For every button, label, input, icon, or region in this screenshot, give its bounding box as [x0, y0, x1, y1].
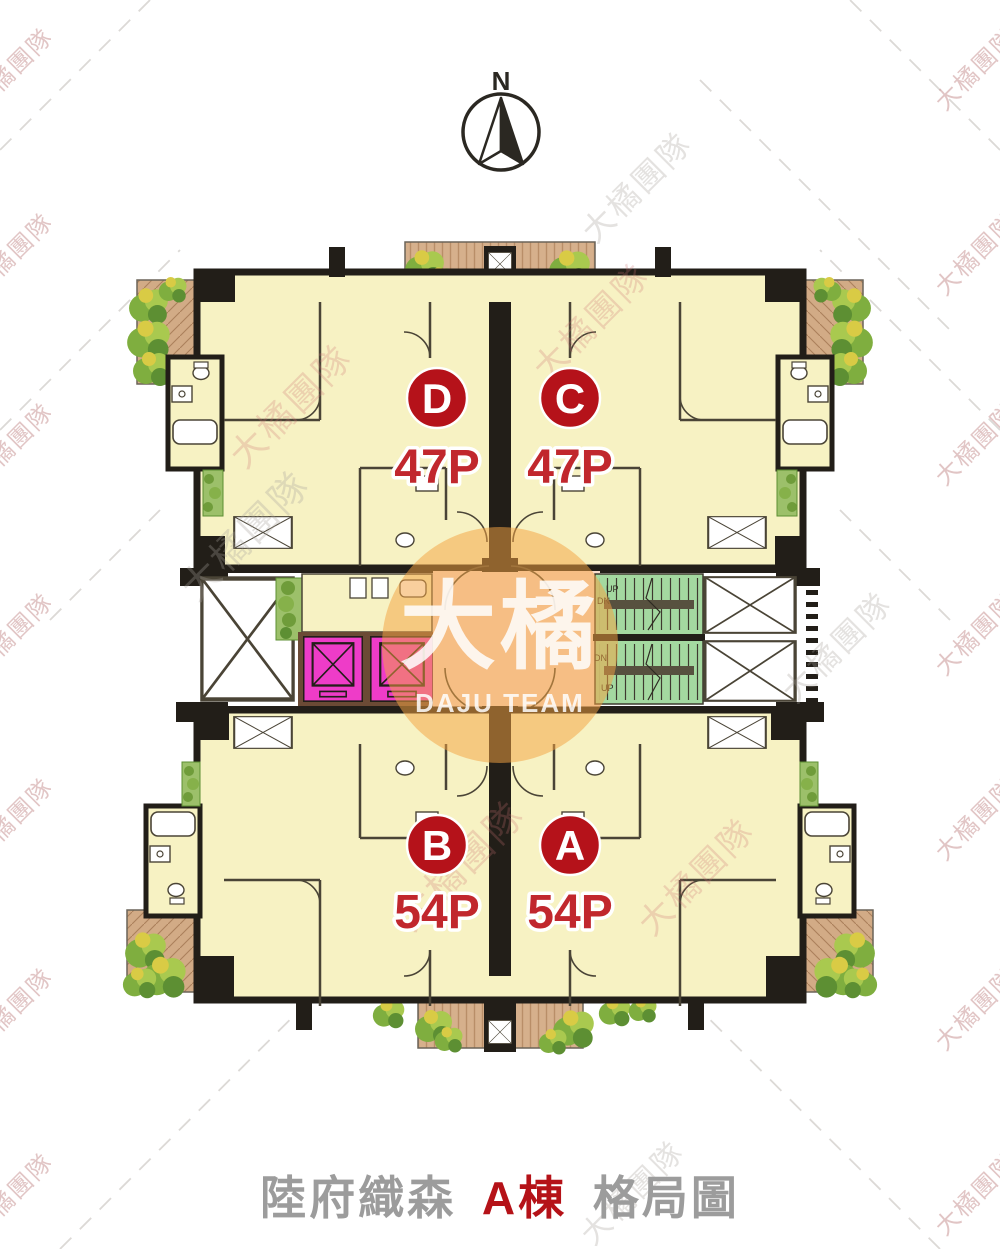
inner-watermark: 大橘團隊 [575, 125, 699, 249]
floor-plan-svg: 大橘團隊 大橘團隊 大橘團隊 大橘團隊 大橘團隊 大橘團隊 大橘團隊 大橘團隊 … [0, 0, 1000, 1249]
edge-watermark: 大橘團隊 [930, 23, 1000, 116]
edge-watermark: 大橘團隊 [0, 398, 59, 491]
compass: N [463, 66, 539, 170]
center-watermark: 大橘 DAJU TEAM [382, 527, 618, 763]
edge-watermark: 大橘團隊 [0, 773, 59, 866]
edge-watermark: 大橘團隊 [930, 208, 1000, 301]
unit-letter: A [555, 822, 585, 869]
edge-watermark: 大橘團隊 [0, 963, 59, 1056]
edge-watermark: 大橘團隊 [0, 588, 59, 681]
floor-plan-page: 大橘團隊 大橘團隊 大橘團隊 大橘團隊 大橘團隊 大橘團隊 大橘團隊 大橘團隊 … [0, 0, 1000, 1249]
edge-watermark: 大橘團隊 [930, 398, 1000, 491]
center-watermark-sub: DAJU TEAM [415, 688, 585, 718]
unit-size: 54P [527, 886, 612, 939]
title-project: 陸府織森 [260, 1172, 456, 1224]
compass-north-label: N [492, 66, 511, 96]
edge-watermark: 大橘團隊 [0, 208, 59, 301]
title-suffix: 格局圖 [593, 1172, 740, 1224]
unit-size: 47P [394, 441, 479, 494]
unit-letter: D [422, 375, 452, 422]
unit-size: 47P [527, 441, 612, 494]
edge-watermark: 大橘團隊 [930, 773, 1000, 866]
title-building: A棟 [482, 1172, 567, 1224]
right-shaft-upper [705, 577, 795, 633]
stair-label-up: UP [606, 584, 619, 594]
unit-size: 54P [394, 886, 479, 939]
edge-watermark: 大橘團隊 [0, 23, 59, 116]
plan-title: 陸府織森 A棟 格局圖 [0, 1162, 1000, 1228]
center-watermark-main: 大橘 [400, 574, 600, 681]
unit-letter: C [555, 375, 585, 422]
unit-letter: B [422, 822, 452, 869]
elevator-1 [303, 636, 363, 702]
edge-watermark: 大橘團隊 [930, 588, 1000, 681]
edge-watermark: 大橘團隊 [930, 963, 1000, 1056]
